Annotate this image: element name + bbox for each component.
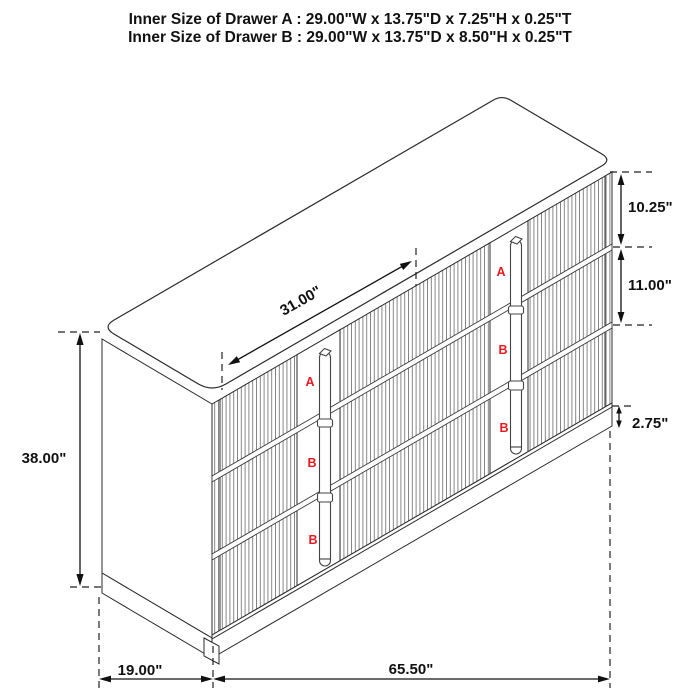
- drawer-label-left-a: A: [305, 375, 314, 389]
- drawer-handle-left: [318, 349, 333, 567]
- fluted-panel-right: [528, 176, 605, 452]
- dimension-drawer-a-label: 10.25": [628, 199, 673, 216]
- dimension-overall-height: 38.00": [22, 332, 104, 587]
- dresser-diagram-svg: Inner Size of Drawer A : 29.00"W x 13.75…: [0, 0, 700, 700]
- dimension-base-height-label: 2.75": [632, 415, 668, 432]
- title-drawer-b: Inner Size of Drawer B : 29.00"W x 13.75…: [128, 29, 572, 46]
- dresser-illustration: A B B A B B: [102, 98, 612, 664]
- drawer-handle-right: [509, 237, 524, 455]
- front-corner-left: [212, 399, 220, 635]
- fluted-panel-left: [220, 355, 297, 631]
- dimension-overall-width-label: 65.50": [389, 661, 434, 678]
- dimension-overall-height-label: 38.00": [22, 450, 67, 467]
- dimension-base-height: 2.75": [612, 406, 668, 432]
- dimension-drawer-a-height: 10.25": [610, 172, 673, 247]
- drawer-label-right-a: A: [496, 265, 505, 279]
- front-corner-right: [605, 172, 612, 407]
- handle-strip-left: [297, 330, 340, 586]
- dimension-depth-label: 19.00": [118, 662, 163, 679]
- dimension-drawer-b-height: 11.00": [613, 249, 672, 325]
- drawer-label-left-b1: B: [307, 456, 316, 470]
- drawer-label-left-b2: B: [308, 533, 317, 547]
- dimension-drawer-b-label: 11.00": [628, 277, 672, 294]
- drawer-label-right-b1: B: [498, 343, 507, 357]
- title-drawer-a: Inner Size of Drawer A : 29.00"W x 13.75…: [129, 11, 572, 28]
- dimension-diagram: Inner Size of Drawer A : 29.00"W x 13.75…: [0, 0, 700, 700]
- drawer-label-right-b2: B: [499, 421, 508, 435]
- handle-strip-right: [490, 221, 528, 474]
